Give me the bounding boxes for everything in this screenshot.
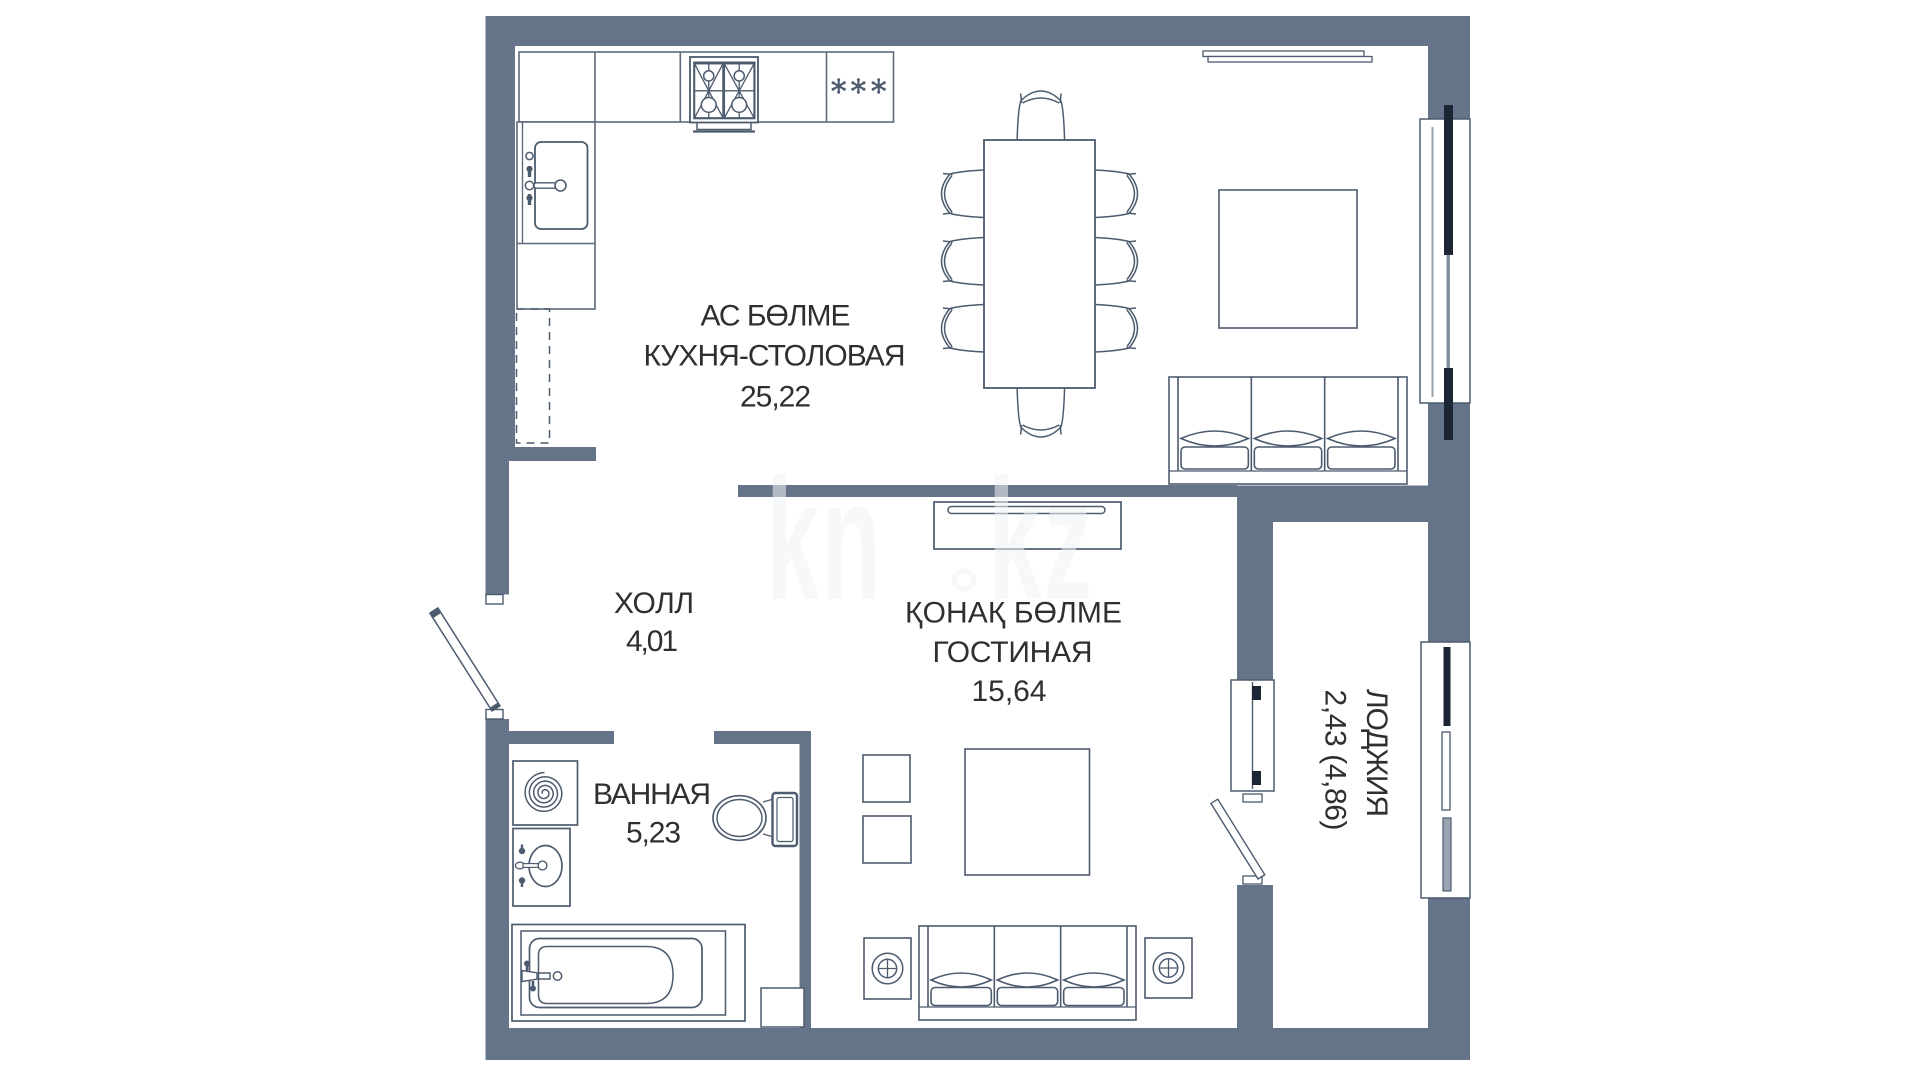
svg-text:15,64: 15,64 <box>972 675 1047 708</box>
svg-text:ГОСТИНАЯ: ГОСТИНАЯ <box>933 636 1093 669</box>
svg-text:2,43 (4,86): 2,43 (4,86) <box>1319 690 1352 831</box>
svg-text:4,01: 4,01 <box>626 625 678 658</box>
svg-text:ХОЛЛ: ХОЛЛ <box>614 587 694 620</box>
svg-text:КУХНЯ-СТОЛОВАЯ: КУХНЯ-СТОЛОВАЯ <box>644 340 906 373</box>
svg-text:kn: kn <box>766 444 883 636</box>
svg-text:5,23: 5,23 <box>626 816 681 849</box>
svg-text:ЛОДЖИЯ: ЛОДЖИЯ <box>1360 689 1393 817</box>
svg-text:АС БӨЛМЕ: АС БӨЛМЕ <box>701 300 851 333</box>
svg-text:25,22: 25,22 <box>740 380 811 413</box>
svg-text:ҚОНАҚ БӨЛМЕ: ҚОНАҚ БӨЛМЕ <box>905 597 1122 630</box>
svg-text:ВАННАЯ: ВАННАЯ <box>593 778 711 811</box>
